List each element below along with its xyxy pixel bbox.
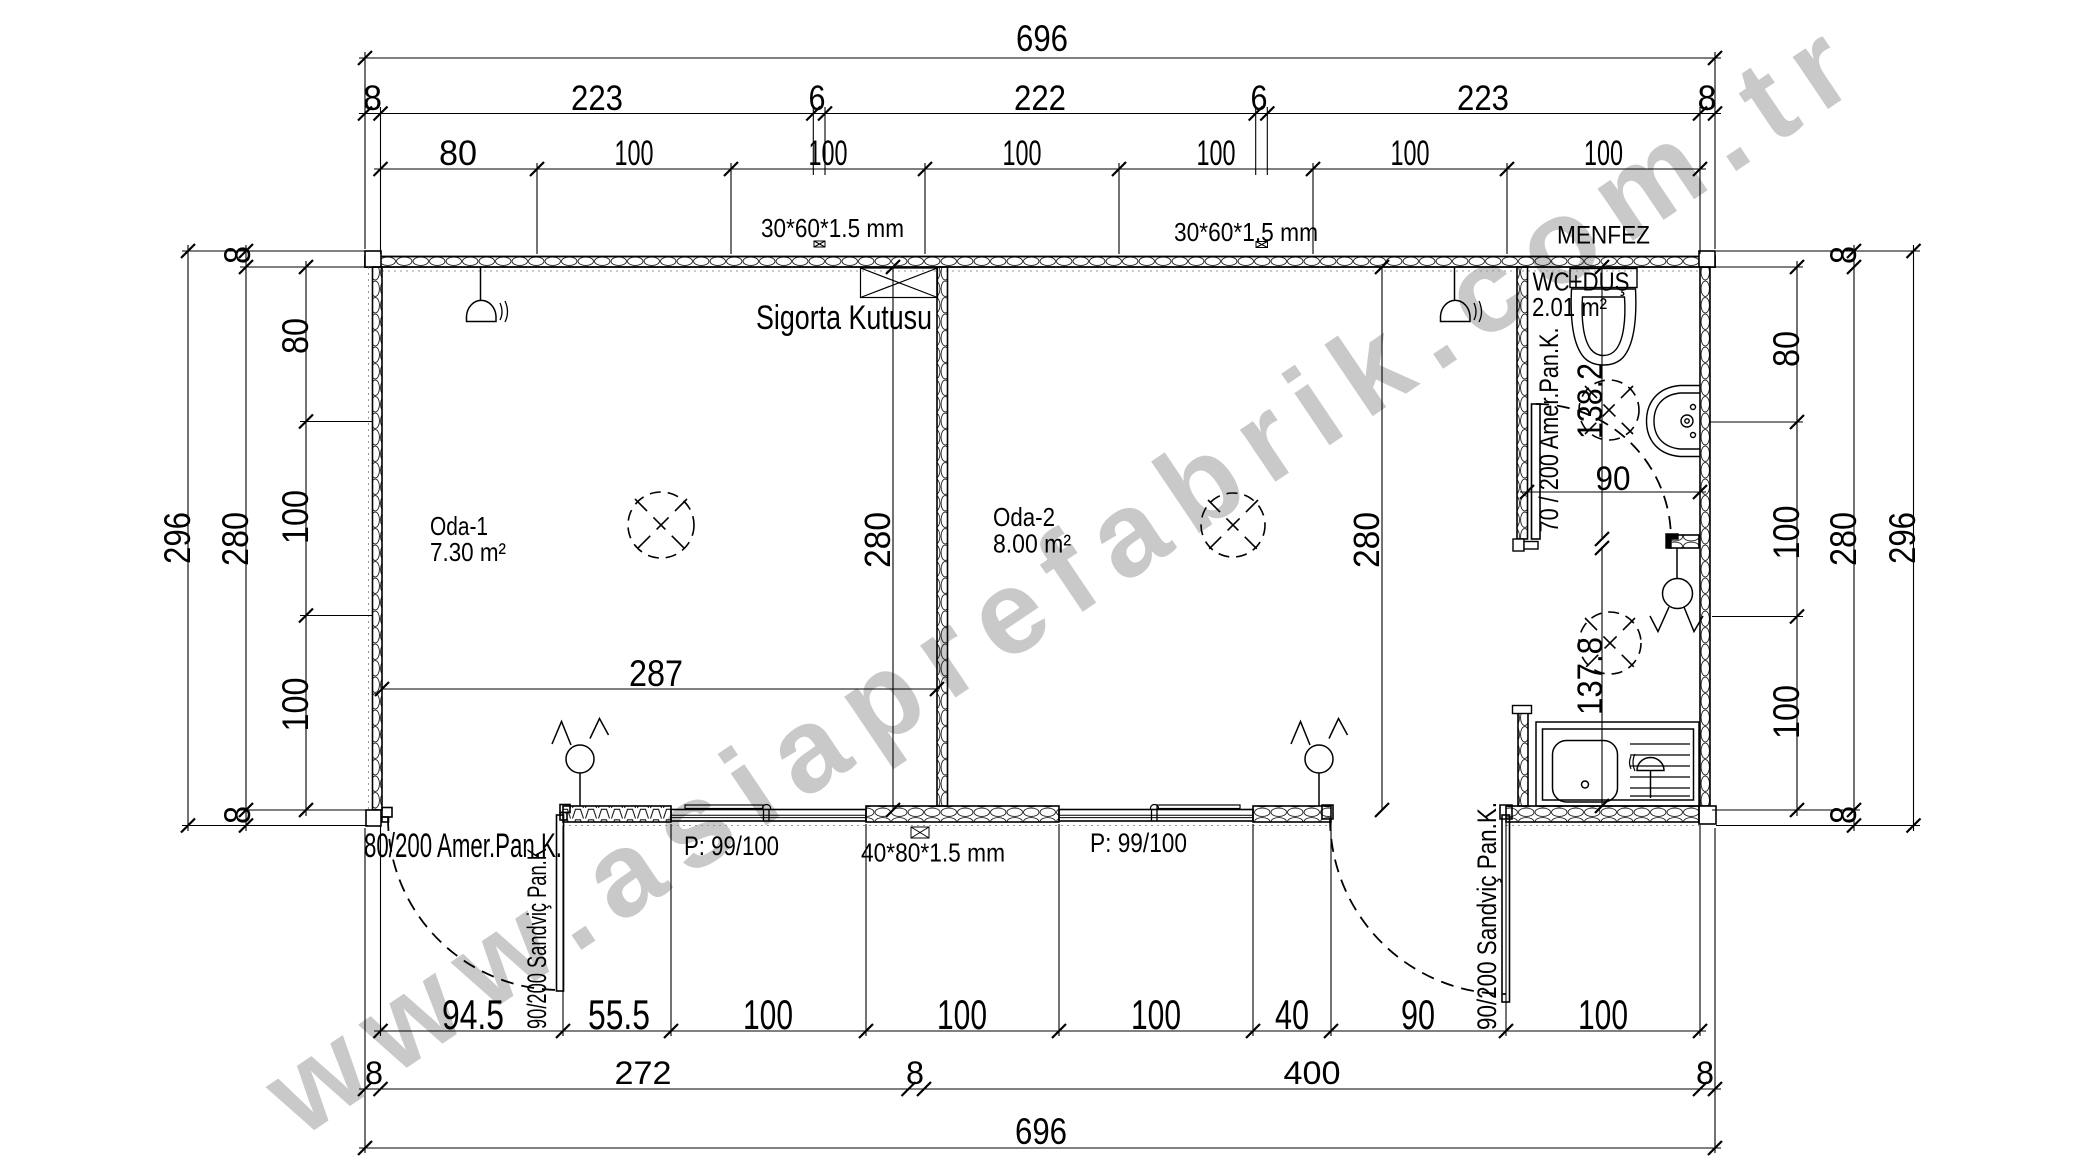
svg-text:100: 100 [1766,685,1807,739]
svg-text:100: 100 [743,991,793,1038]
svg-text:137.8: 137.8 [1571,637,1610,715]
svg-text:696: 696 [1016,18,1068,59]
svg-text:100: 100 [1766,506,1807,560]
svg-text:222: 222 [1014,79,1066,118]
svg-text:8: 8 [217,806,258,824]
svg-text:6: 6 [1251,79,1268,118]
svg-text:90/200 Sandviç Pan.K.: 90/200 Sandviç Pan.K. [522,843,552,1029]
svg-text:55.5: 55.5 [588,991,650,1038]
svg-text:100: 100 [1003,134,1042,173]
svg-text:100: 100 [275,678,316,732]
svg-text:8: 8 [1823,806,1864,824]
svg-text:80: 80 [275,318,316,354]
svg-text:100: 100 [1584,134,1623,173]
svg-text:90/200 Sandviç Pan.K.: 90/200 Sandviç Pan.K. [1472,802,1502,1030]
svg-text:40*80*1.5 mm: 40*80*1.5 mm [861,838,1005,868]
svg-text:280: 280 [215,512,256,566]
svg-text:100: 100 [809,134,848,173]
svg-text:8: 8 [217,246,258,264]
svg-text:272: 272 [615,1055,672,1091]
svg-text:8: 8 [363,79,382,118]
svg-text:70 / 200 Amer.Pan.K.: 70 / 200 Amer.Pan.K. [1534,328,1564,533]
svg-text:8.00 m²: 8.00 m² [993,529,1071,559]
svg-text:6: 6 [809,79,826,118]
svg-text:100: 100 [1391,134,1430,173]
svg-text:696: 696 [1015,1111,1067,1152]
svg-text:296: 296 [157,512,198,564]
svg-text:100: 100 [1578,991,1628,1038]
svg-text:Sigorta Kutusu: Sigorta Kutusu [756,299,932,337]
svg-text:296: 296 [1882,512,1923,564]
svg-text:40: 40 [1275,991,1309,1038]
svg-text:223: 223 [1457,79,1509,118]
svg-text:94.5: 94.5 [442,991,504,1038]
svg-text:P: 99/100: P: 99/100 [684,831,779,861]
svg-text:280: 280 [1823,512,1864,566]
svg-text:8: 8 [906,1055,924,1091]
svg-text:2.01 m²: 2.01 m² [1532,292,1607,322]
svg-text:90: 90 [1401,991,1435,1038]
svg-text:30*60*1.5 mm: 30*60*1.5 mm [761,213,904,243]
svg-text:280: 280 [857,512,898,568]
svg-text:8: 8 [1698,79,1717,118]
svg-text:280: 280 [1346,512,1387,568]
svg-text:400: 400 [1284,1055,1341,1091]
svg-text:138.2: 138.2 [1571,363,1610,439]
svg-text:8: 8 [1696,1055,1714,1091]
svg-text:80: 80 [1766,331,1807,367]
svg-text:223: 223 [571,79,623,118]
svg-text:100: 100 [937,991,987,1038]
svg-text:7.30 m²: 7.30 m² [430,537,506,567]
svg-text:100: 100 [275,490,316,544]
svg-text:90: 90 [1596,460,1631,498]
svg-text:100: 100 [615,134,654,173]
svg-text:8: 8 [365,1055,383,1091]
svg-text:100: 100 [1131,991,1181,1038]
svg-text:80: 80 [439,134,477,173]
svg-text:8: 8 [1823,246,1864,264]
svg-text:P: 99/100: P: 99/100 [1090,828,1187,858]
svg-text:287: 287 [629,653,683,694]
svg-text:Oda-2: Oda-2 [993,502,1055,532]
svg-text:30*60*1.5 mm: 30*60*1.5 mm [1174,217,1318,247]
svg-text:MENFEZ: MENFEZ [1557,222,1650,250]
svg-text:100: 100 [1197,134,1236,173]
